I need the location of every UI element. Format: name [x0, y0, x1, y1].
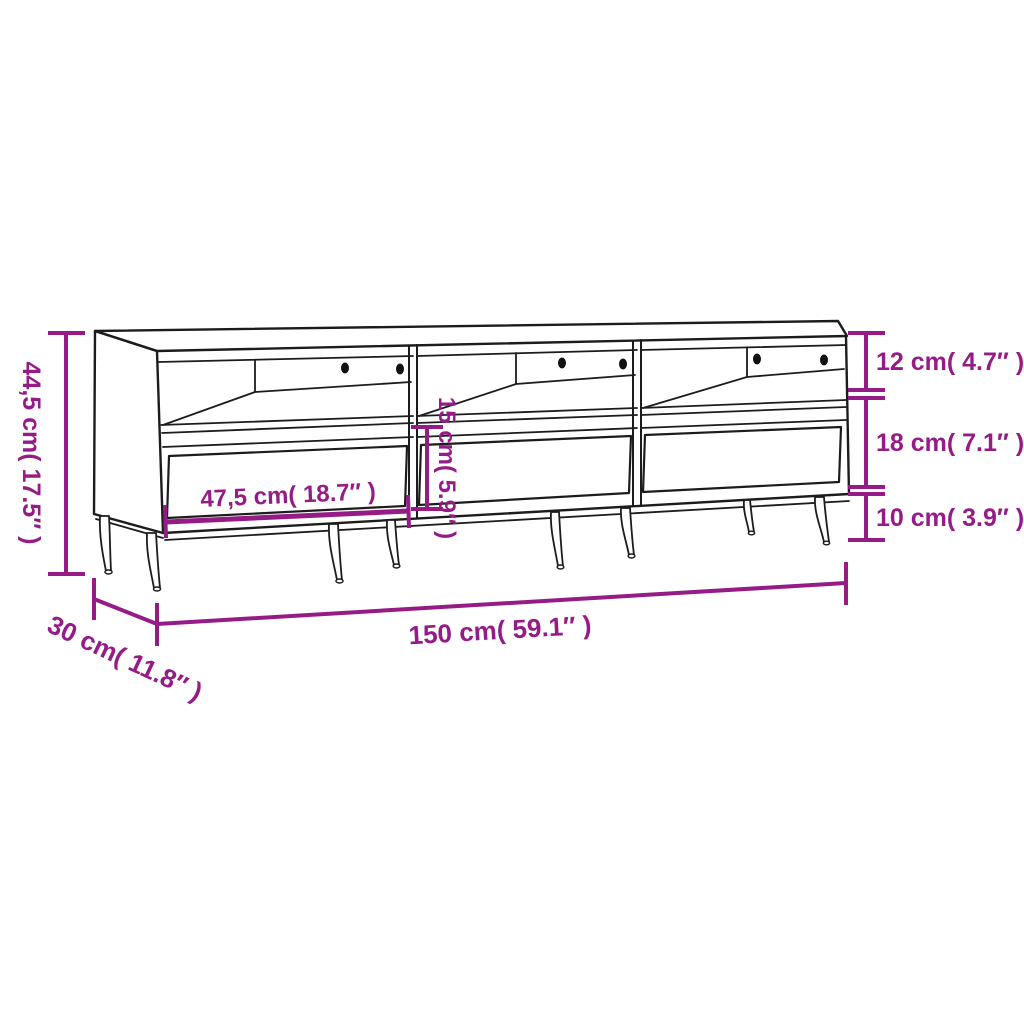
cable-hole [558, 358, 566, 369]
compartment-interior [163, 360, 411, 425]
leg [100, 516, 111, 571]
compartment-interior [643, 348, 844, 408]
leg [621, 508, 634, 555]
leg-foot [748, 531, 754, 535]
cable-hole [396, 364, 404, 375]
dimension-label-overall-width: 150 cm( 59.1″ ) [408, 610, 592, 651]
leg-foot [557, 565, 564, 569]
leg [147, 533, 160, 588]
top-board-underside [641, 345, 846, 350]
dimension-diagram: 44,5 cm( 17.5″ ) 12 cm( 4.7″ ) 18 cm( 7.… [0, 0, 1024, 1024]
top-board-underside [159, 356, 413, 362]
tv-stand-dimension-drawing: 44,5 cm( 17.5″ ) 12 cm( 4.7″ ) 18 cm( 7.… [0, 0, 1024, 1024]
dimension-overall-width: 150 cm( 59.1″ ) [157, 562, 846, 650]
dimension-compartment-height: 12 cm( 4.7″ ) [848, 333, 1024, 390]
cable-hole [820, 355, 828, 366]
dimension-drawer-section-height: 18 cm( 7.1″ ) [848, 398, 1024, 487]
dimension-overall-height: 44,5 cm( 17.5″ ) [17, 333, 85, 574]
cabinet-left-panel [94, 331, 163, 533]
leg-foot [336, 579, 343, 583]
cable-hole [753, 354, 761, 365]
leg [744, 500, 754, 532]
leg-foot [153, 587, 160, 591]
dimension-leg-height: 10 cm( 3.9″ ) [848, 494, 1024, 540]
leg-foot [393, 564, 400, 568]
dimension-overall-depth: 30 cm( 11.8″ ) [43, 578, 207, 707]
dimension-label-compartment-height: 12 cm( 4.7″ ) [876, 348, 1024, 376]
dimension-line [94, 599, 157, 624]
cable-hole [341, 363, 349, 374]
leg [329, 524, 342, 580]
leg [551, 512, 563, 566]
leg-foot [823, 541, 829, 545]
drawer-front [643, 427, 841, 492]
cabinet-drawing [94, 321, 849, 591]
dimension-label-drawer-front-height: 15 cm( 5.9″ ) [433, 397, 460, 539]
dimension-label-drawer-section-height: 18 cm( 7.1″ ) [876, 429, 1024, 457]
leg-foot [628, 554, 635, 558]
leg-foot [105, 570, 112, 574]
top-board-underside [417, 350, 637, 356]
shelf-edges [161, 416, 413, 447]
cable-hole [619, 359, 627, 370]
dimension-label-leg-height: 10 cm( 3.9″ ) [876, 504, 1024, 532]
dimension-label-overall-height: 44,5 cm( 17.5″ ) [17, 362, 45, 545]
section-3 [641, 345, 846, 492]
cabinet-top [95, 321, 847, 351]
leg [815, 497, 829, 542]
shelf-edges [641, 400, 846, 428]
